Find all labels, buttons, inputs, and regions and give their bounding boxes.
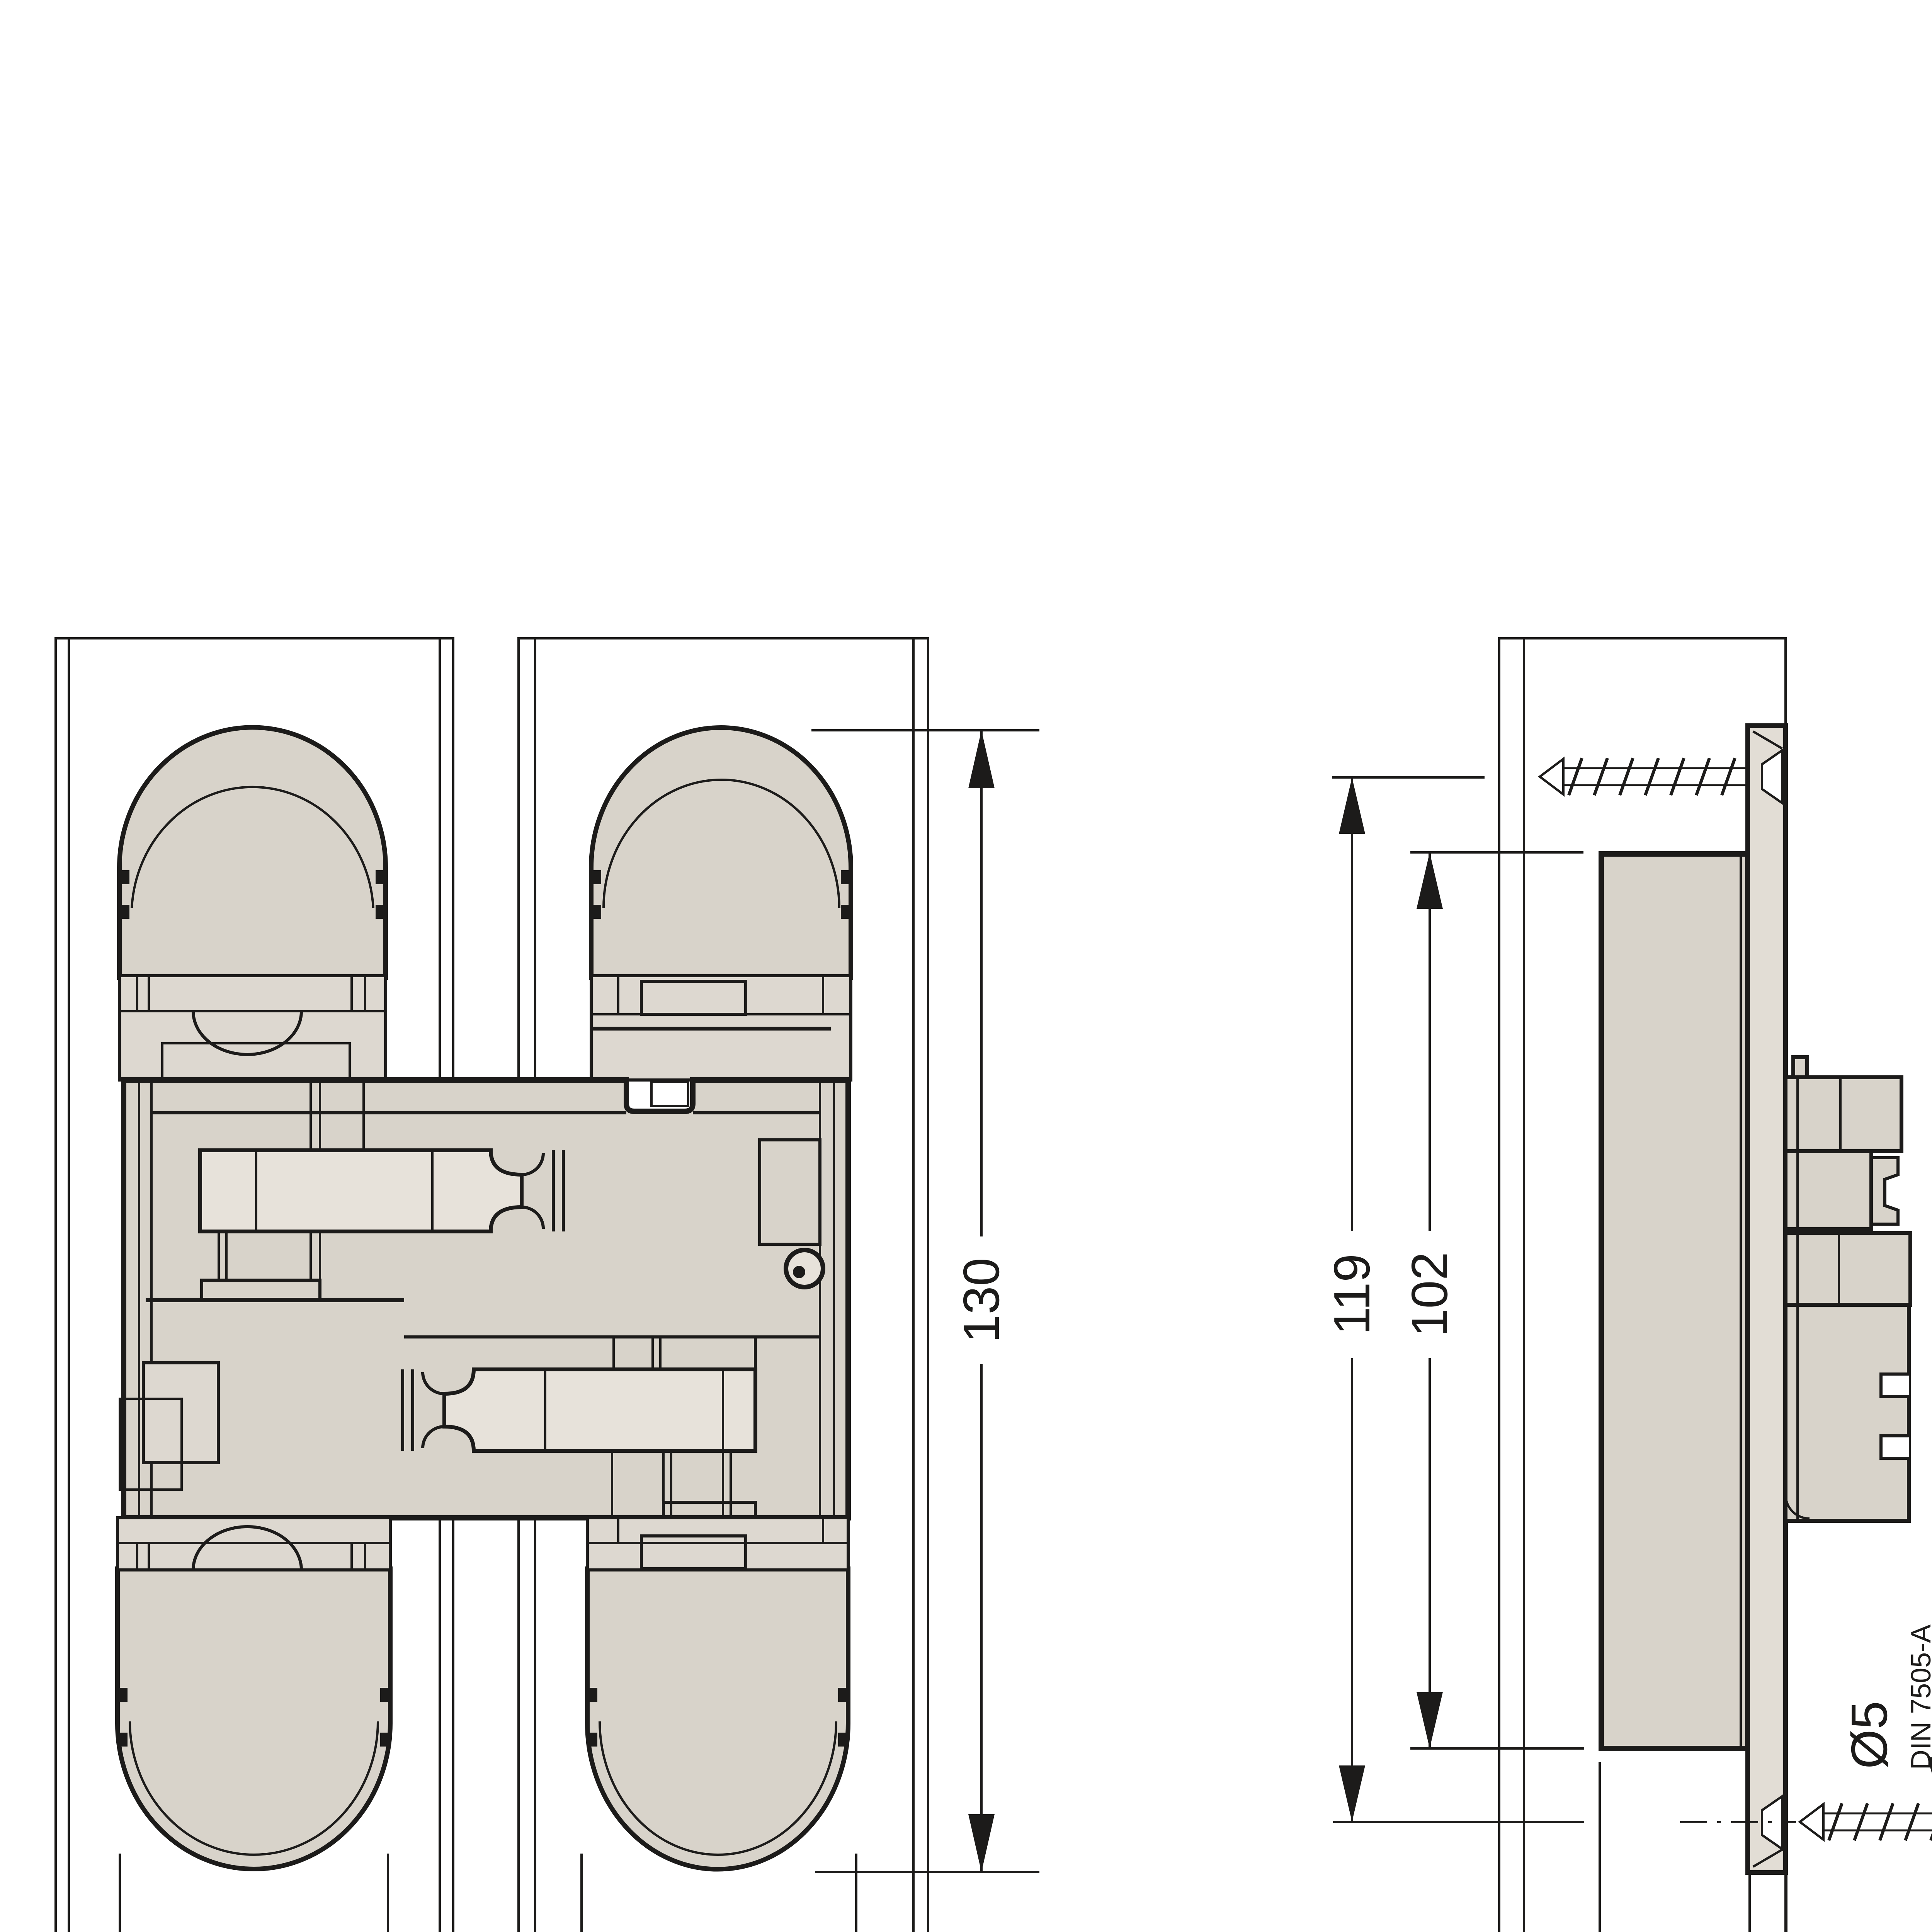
screw-diameter-label: Ø5 (1841, 1701, 1898, 1769)
dim-119: 119 (1323, 1254, 1380, 1335)
pivot-pin-center (793, 1266, 805, 1278)
cup-plate-top-left (119, 976, 386, 1080)
cup-plate-bottom-left (117, 1518, 390, 1570)
front-view: 130 30 21÷23 30 (56, 638, 1039, 1932)
screw-standard-label: DIN 7505-A (1906, 1624, 1932, 1770)
cup-plate-bottom-right (587, 1518, 848, 1570)
face-plate (1748, 726, 1786, 1872)
hinge-mechanism (120, 1080, 848, 1518)
dimension-4-5: 4,5 (1786, 1874, 1887, 1932)
hinge-cup-bottom-left (117, 1569, 390, 1869)
pivot-pin (786, 1250, 823, 1287)
side-view: Ø5 DIN 7505-A 119 102 (1323, 638, 1932, 1932)
hinge-cup-bottom-right (587, 1569, 848, 1869)
screw-callout: Ø5 DIN 7505-A (1841, 1624, 1932, 1804)
hinge-cup-top-right (591, 728, 851, 978)
hinge-cup-top-left (119, 727, 386, 978)
hinge-technical-drawing: 130 30 21÷23 30 (0, 0, 1932, 1932)
dim-102: 102 (1401, 1252, 1458, 1337)
dim-130: 130 (953, 1258, 1010, 1343)
screw-bottom-threads (1829, 1803, 1932, 1840)
cup-plate-top-right (591, 976, 851, 1080)
hinge-body-section (1601, 854, 1748, 1748)
linkage-blocks (1786, 1057, 1910, 1521)
